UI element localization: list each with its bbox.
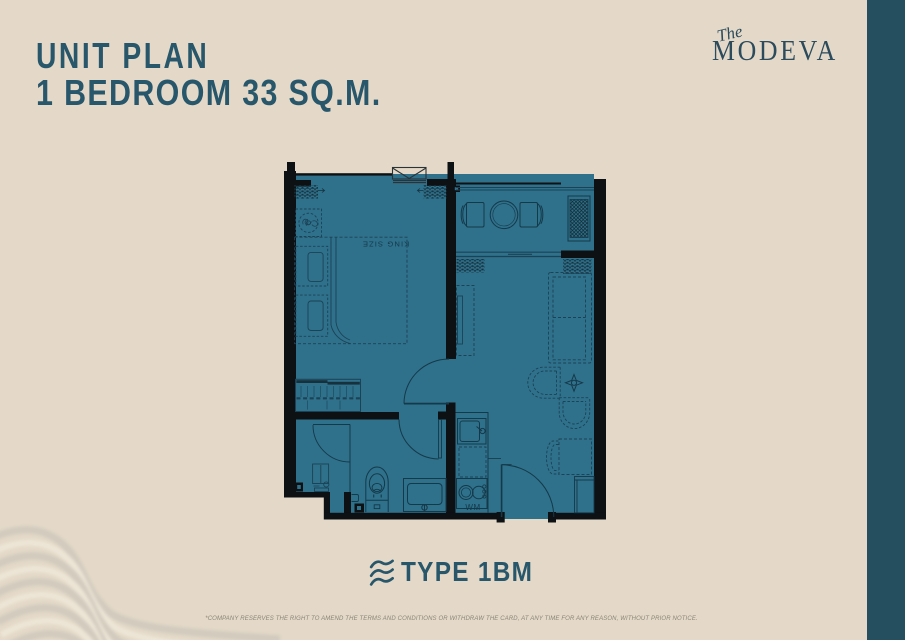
svg-text:WM: WM xyxy=(465,503,480,512)
svg-text:KING SIZE: KING SIZE xyxy=(362,240,409,249)
